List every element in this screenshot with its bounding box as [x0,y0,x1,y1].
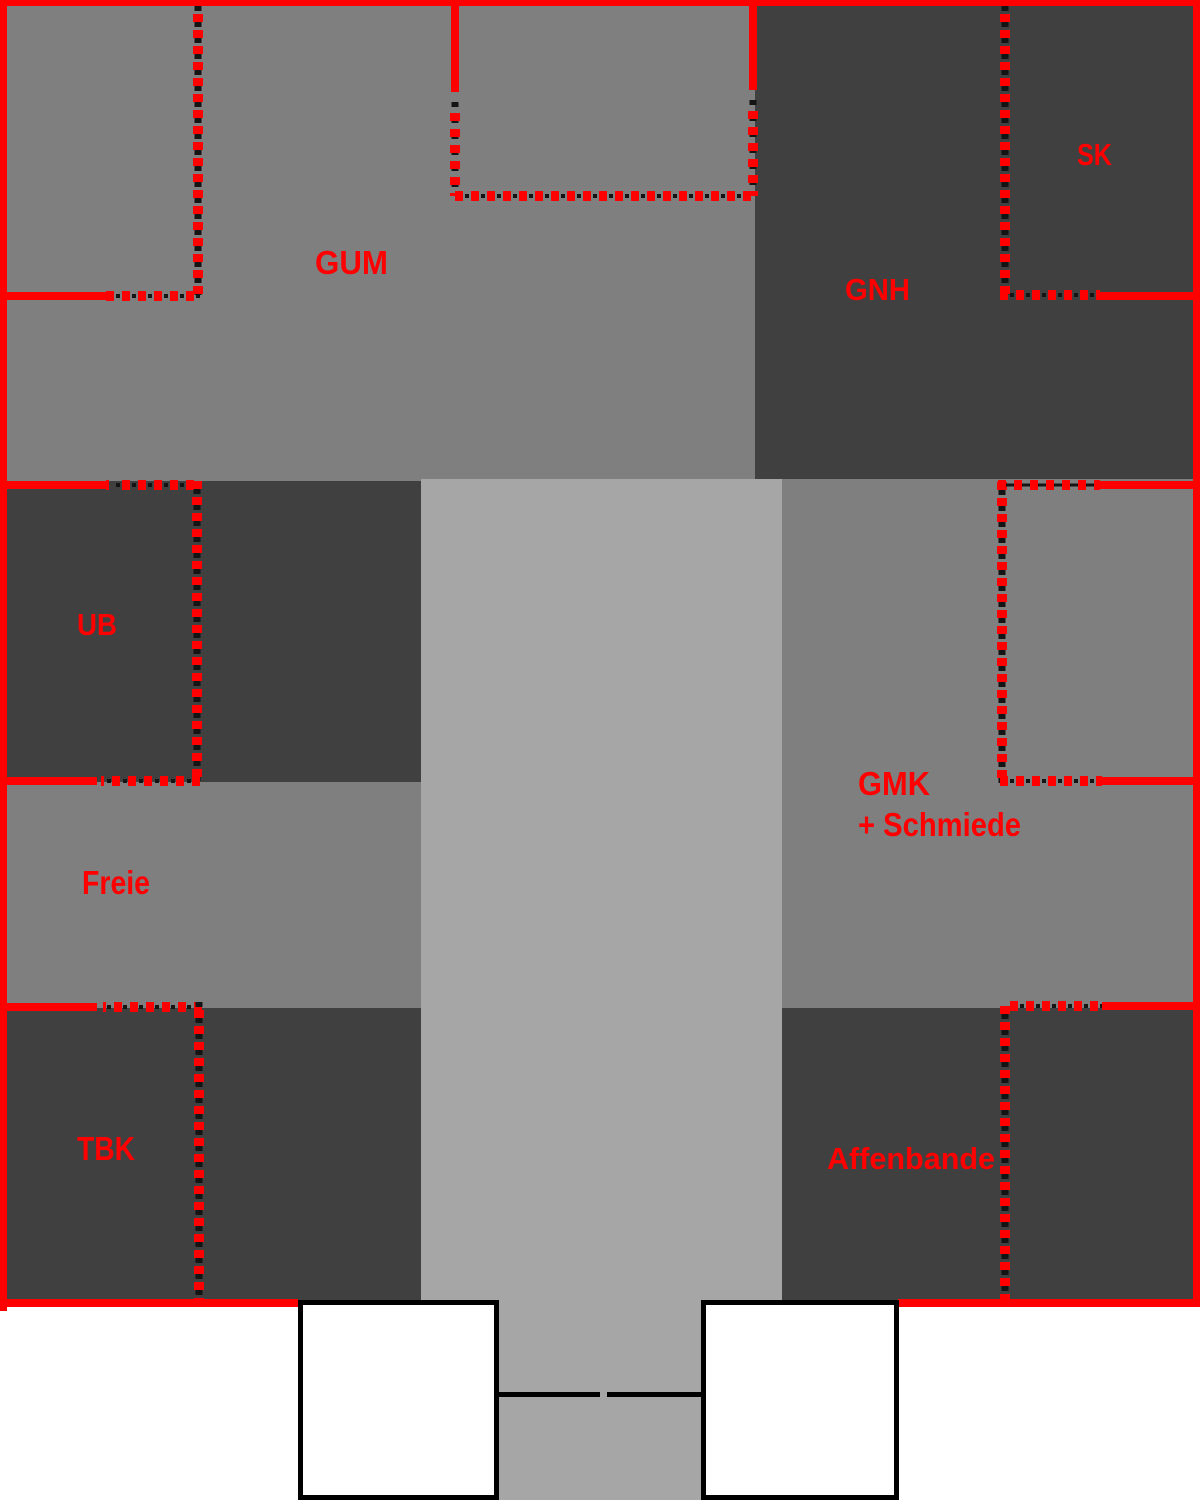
svg-text:Affenbande: Affenbande [827,1141,995,1176]
svg-text:TBK: TBK [77,1130,135,1167]
svg-text:GNH: GNH [845,272,910,307]
svg-text:GUM: GUM [315,244,388,281]
svg-text:GMK: GMK [858,765,930,802]
svg-text:UB: UB [77,607,117,642]
svg-text:+ Schmiede: + Schmiede [858,806,1021,843]
svg-text:SK: SK [1077,137,1112,172]
svg-text:Freie: Freie [82,864,150,901]
